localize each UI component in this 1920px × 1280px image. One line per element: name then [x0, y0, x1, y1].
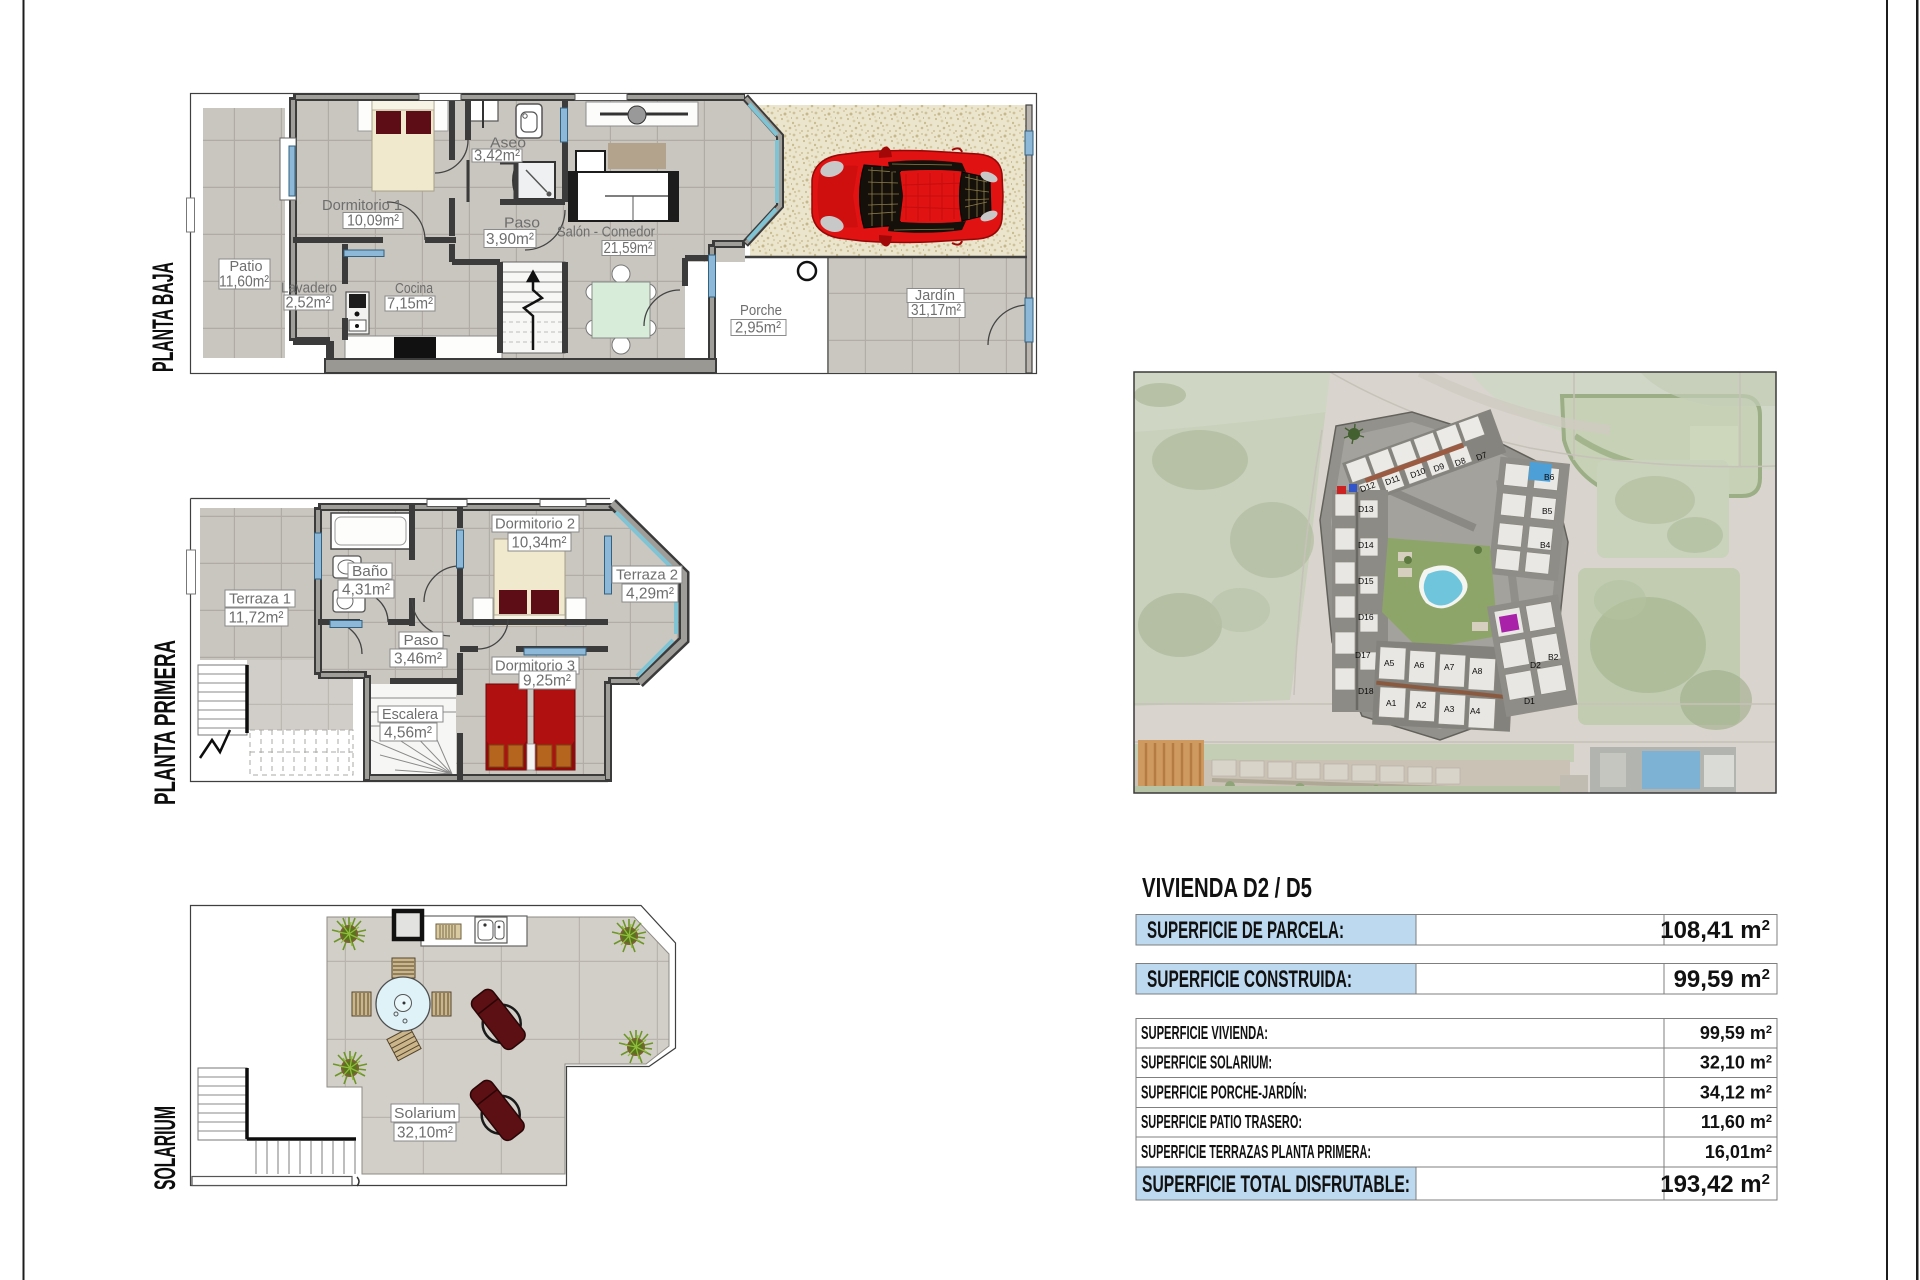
svg-text:B2: B2 — [1548, 652, 1559, 662]
svg-text:Porche: Porche — [740, 302, 782, 319]
svg-text:D18: D18 — [1358, 686, 1374, 696]
svg-text:SUPERFICIE DE PARCELA:: SUPERFICIE DE PARCELA: — [1147, 917, 1344, 944]
svg-text:7,15m²: 7,15m² — [387, 296, 434, 313]
svg-text:SUPERFICIE VIVIENDA:: SUPERFICIE VIVIENDA: — [1141, 1023, 1268, 1043]
svg-text:31,17m²: 31,17m² — [911, 302, 962, 319]
svg-text:Patio: Patio — [230, 258, 263, 275]
svg-text:Salón - Comedor: Salón - Comedor — [557, 224, 655, 241]
svg-text:A5: A5 — [1384, 658, 1395, 668]
svg-text:SUPERFICIE TOTAL DISFRUTABLE:: SUPERFICIE TOTAL DISFRUTABLE: — [1142, 1171, 1410, 1198]
svg-text:A3: A3 — [1444, 704, 1455, 714]
svg-text:32,10 m2: 32,10 m2 — [1700, 1053, 1772, 1073]
svg-text:3,46m²: 3,46m² — [394, 651, 443, 668]
svg-text:10,34m²: 10,34m² — [512, 535, 568, 552]
svg-text:PLANTA BAJA: PLANTA BAJA — [147, 262, 180, 372]
svg-text:Solarium: Solarium — [394, 1105, 456, 1122]
svg-text:Terraza 1: Terraza 1 — [229, 591, 291, 608]
svg-text:D2: D2 — [1530, 660, 1541, 670]
svg-text:A4: A4 — [1470, 706, 1481, 716]
svg-text:9,25m²: 9,25m² — [523, 673, 572, 690]
svg-text:Baño: Baño — [352, 563, 388, 580]
svg-text:SUPERFICIE CONSTRUIDA:: SUPERFICIE CONSTRUIDA: — [1147, 966, 1352, 993]
svg-text:D1: D1 — [1524, 696, 1535, 706]
svg-text:3,42m²: 3,42m² — [474, 148, 521, 165]
svg-text:11,72m²: 11,72m² — [229, 610, 285, 627]
svg-text:Paso: Paso — [404, 632, 439, 649]
svg-text:D13: D13 — [1358, 504, 1374, 514]
svg-text:B5: B5 — [1542, 506, 1553, 516]
svg-text:A8: A8 — [1472, 666, 1483, 676]
svg-text:4,31m²: 4,31m² — [342, 582, 391, 599]
svg-text:D15: D15 — [1358, 576, 1374, 586]
svg-text:VIVIENDA D2 / D5: VIVIENDA D2 / D5 — [1142, 872, 1312, 903]
svg-text:A2: A2 — [1416, 700, 1427, 710]
svg-text:B4: B4 — [1540, 540, 1551, 550]
svg-text:4,29m²: 4,29m² — [626, 586, 675, 603]
svg-text:11,60 m2: 11,60 m2 — [1701, 1112, 1772, 1132]
svg-text:2,52m²: 2,52m² — [286, 295, 332, 312]
svg-text:108,41 m2: 108,41 m2 — [1660, 917, 1770, 944]
svg-text:Cocina: Cocina — [395, 280, 434, 297]
svg-text:D16: D16 — [1358, 612, 1374, 622]
svg-text:32,10m²: 32,10m² — [397, 1125, 454, 1142]
svg-text:A1: A1 — [1386, 698, 1397, 708]
svg-text:Dormitorio 2: Dormitorio 2 — [495, 516, 575, 533]
svg-text:Escalera: Escalera — [382, 706, 439, 723]
svg-text:21,59m²: 21,59m² — [604, 240, 654, 257]
svg-text:3,90m²: 3,90m² — [486, 231, 535, 248]
svg-text:193,42 m2: 193,42 m2 — [1660, 1171, 1770, 1198]
svg-text:SUPERFICIE TERRAZAS PLANTA PRI: SUPERFICIE TERRAZAS PLANTA PRIMERA: — [1141, 1142, 1371, 1162]
svg-text:10,09m²: 10,09m² — [347, 213, 400, 230]
svg-text:4,56m²: 4,56m² — [384, 725, 433, 742]
svg-text:2,95m²: 2,95m² — [735, 320, 782, 337]
svg-text:Paso: Paso — [504, 215, 540, 232]
svg-text:34,12 m2: 34,12 m2 — [1700, 1082, 1772, 1102]
svg-text:99,59 m2: 99,59 m2 — [1674, 966, 1770, 993]
svg-text:SUPERFICIE PORCHE-JARDÍN:: SUPERFICIE PORCHE-JARDÍN: — [1141, 1081, 1307, 1102]
svg-text:A6: A6 — [1414, 660, 1425, 670]
svg-text:D17: D17 — [1355, 650, 1371, 660]
svg-text:Terraza 2: Terraza 2 — [616, 567, 678, 584]
svg-text:SUPERFICIE PATIO TRASERO:: SUPERFICIE PATIO TRASERO: — [1141, 1112, 1302, 1132]
svg-text:SOLARIUM: SOLARIUM — [149, 1106, 182, 1190]
svg-text:PLANTA PRIMERA: PLANTA PRIMERA — [149, 640, 182, 805]
svg-text:Dormitorio 1: Dormitorio 1 — [322, 197, 402, 214]
svg-text:11,60m²: 11,60m² — [219, 274, 270, 291]
svg-text:B6: B6 — [1544, 472, 1555, 482]
svg-text:A7: A7 — [1444, 662, 1455, 672]
svg-text:16,01m2: 16,01m2 — [1705, 1142, 1772, 1162]
svg-text:SUPERFICIE SOLARIUM:: SUPERFICIE SOLARIUM: — [1141, 1053, 1272, 1073]
svg-text:99,59 m2: 99,59 m2 — [1700, 1023, 1772, 1043]
svg-text:D14: D14 — [1358, 540, 1374, 550]
